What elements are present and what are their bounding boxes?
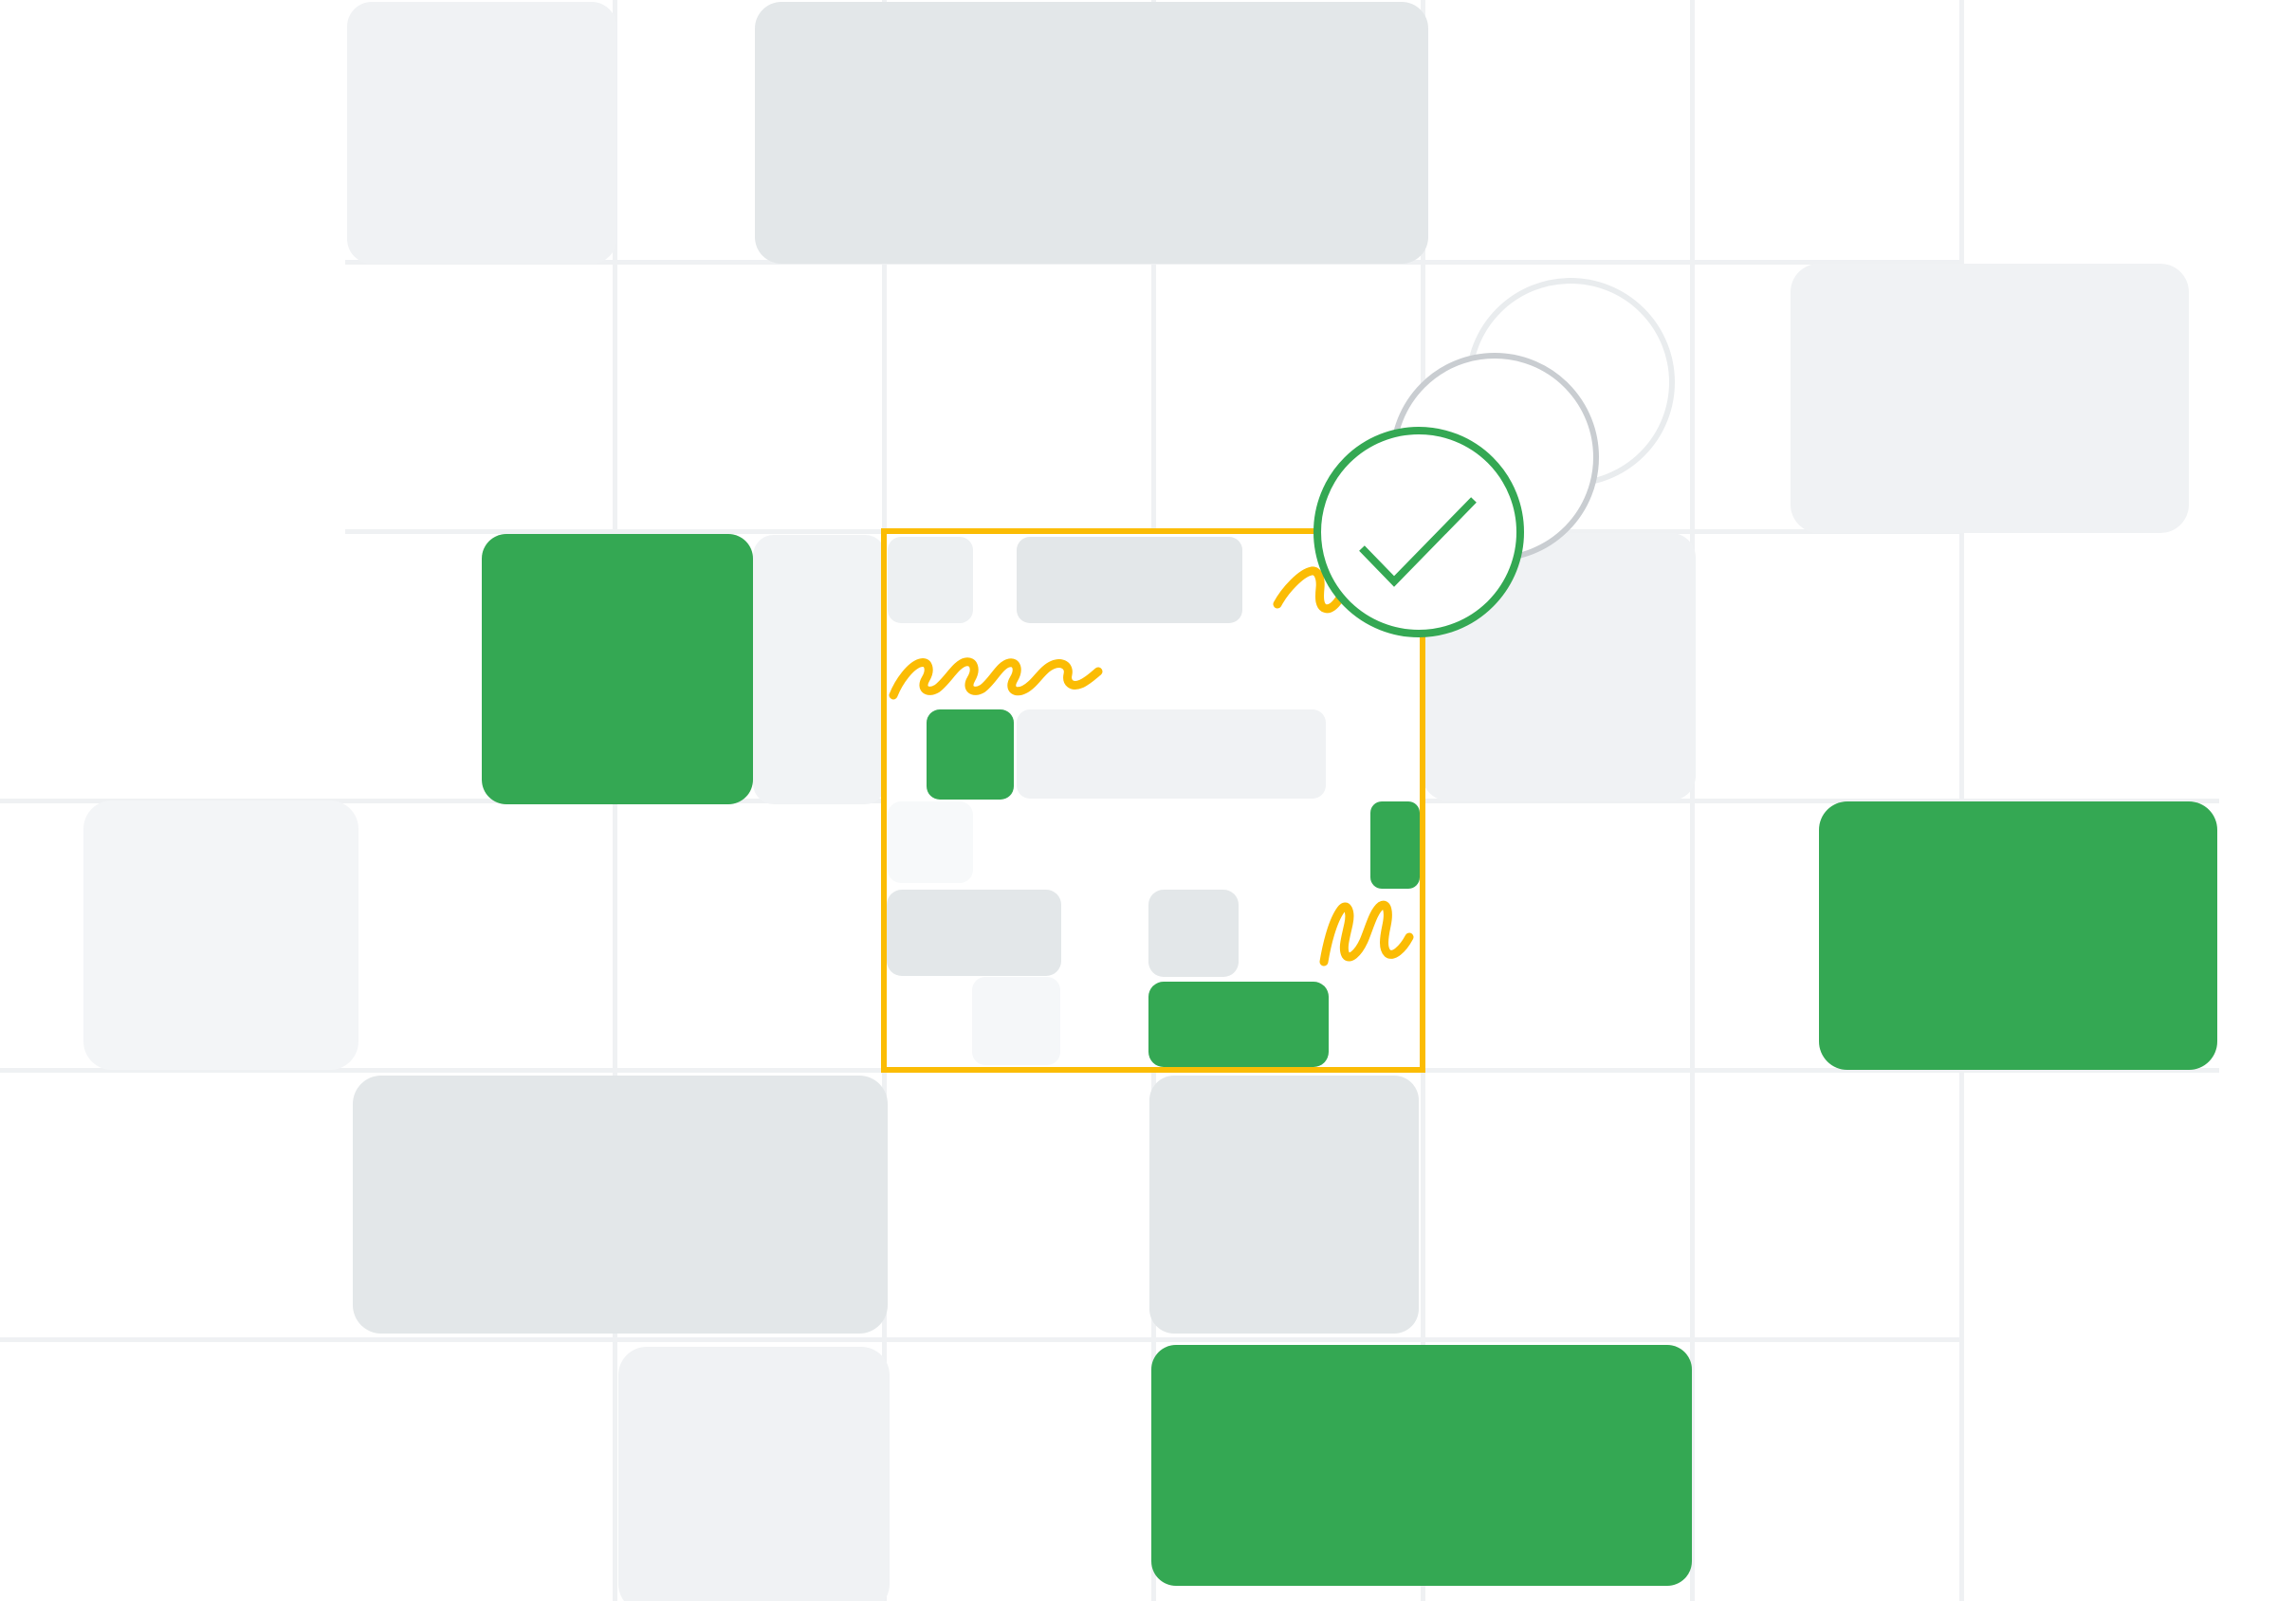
selection-box-border bbox=[881, 528, 1425, 1073]
illustration-canvas bbox=[0, 0, 2296, 1601]
selection-border-layer bbox=[0, 0, 2296, 1601]
